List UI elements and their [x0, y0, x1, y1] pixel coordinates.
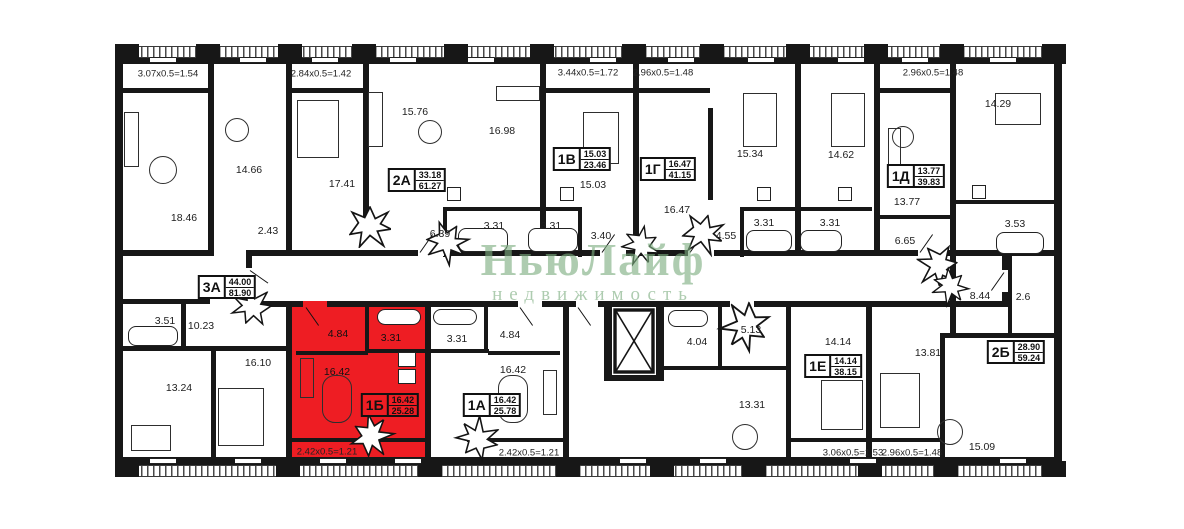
window-icon	[590, 57, 616, 63]
wall	[604, 375, 664, 381]
wall	[950, 200, 1062, 204]
bathtub-icon	[377, 309, 421, 325]
window-icon	[1000, 458, 1026, 464]
door-opening	[303, 301, 327, 307]
window-icon	[150, 57, 176, 63]
wall	[484, 307, 488, 353]
room-area-label: 16.42	[324, 366, 350, 378]
furniture-outline	[368, 92, 383, 147]
living-area-value: 33.18	[416, 170, 445, 181]
window-icon	[748, 57, 774, 63]
wall	[443, 207, 582, 211]
wall	[543, 88, 635, 93]
window-icon	[240, 57, 266, 63]
apartment-type-label: 1Е	[806, 356, 829, 376]
facade-pier	[786, 44, 810, 64]
balcony-railing	[123, 465, 1055, 477]
room-area-label: 3.40	[591, 230, 611, 242]
apartment-badge-2b[interactable]: 2Б28.9059.24	[987, 340, 1045, 364]
facade-pier	[622, 44, 646, 64]
apartment-badge-1d[interactable]: 1Д13.7739.83	[887, 164, 945, 188]
bathtub-icon	[128, 326, 178, 346]
furniture-outline	[543, 370, 557, 415]
room-area-label: 4.04	[687, 336, 707, 348]
facade-pier	[1042, 44, 1066, 64]
bed-icon	[322, 375, 352, 423]
apartment-type-label: 1В	[555, 149, 579, 169]
wall	[740, 207, 872, 211]
room-area-label: 6.65	[895, 235, 915, 247]
wall	[708, 108, 713, 200]
room-area-label: 13.81	[915, 347, 941, 359]
table-icon	[418, 120, 442, 144]
apartment-type-label: 1А	[465, 395, 489, 415]
facade-pier	[530, 44, 554, 64]
room-area-label: 5.13	[741, 324, 761, 336]
apartment-areas: 16.4225.28	[387, 395, 418, 415]
door-swing-icon	[520, 307, 533, 326]
wall	[878, 88, 952, 93]
living-area-value: 14.14	[831, 356, 860, 367]
table-icon	[149, 156, 177, 184]
apartment-badge-1b[interactable]: 1Б16.4225.28	[361, 393, 419, 417]
apartment-areas: 28.9059.24	[1013, 342, 1044, 362]
room-area-label: 15.03	[580, 179, 606, 191]
dimension-label: 2.84x0.5=1.42	[291, 69, 351, 80]
wall	[1054, 56, 1062, 465]
room-area-label: 3.51	[155, 315, 175, 327]
table-icon	[732, 424, 758, 450]
room-area-label: 15.09	[969, 441, 995, 453]
room-area-label: 10.23	[188, 320, 214, 332]
room-area-label: 3.31	[447, 333, 467, 345]
wall	[296, 351, 368, 355]
bathtub-icon	[668, 310, 708, 327]
bathtub-icon	[746, 230, 792, 252]
dimension-label: 2.96x0.5=1.48	[903, 68, 963, 79]
facade-pier	[278, 44, 302, 64]
apartment-areas: 16.4225.78	[489, 395, 520, 415]
bathtub-icon	[800, 230, 842, 252]
room-area-label: 13.77	[894, 196, 920, 208]
watermark: НьюЛайф недвижимость	[481, 238, 706, 306]
furniture-outline	[124, 112, 139, 167]
room-area-label: 4.55	[716, 230, 736, 242]
facade-pier	[418, 461, 442, 477]
furniture-outline	[821, 380, 863, 430]
window-icon	[150, 458, 176, 464]
window-icon	[700, 458, 726, 464]
window-icon	[668, 57, 694, 63]
room-area-label: 14.29	[985, 98, 1011, 110]
total-area-value: 81.90	[226, 288, 255, 298]
door-opening	[576, 301, 598, 307]
room-area-label: 15.34	[737, 148, 763, 160]
apartment-areas: 14.1438.15	[829, 356, 860, 376]
facade-pier	[940, 44, 964, 64]
furniture-outline	[300, 358, 314, 398]
living-area-value: 16.42	[491, 395, 520, 406]
room-area-label: 8.44	[970, 290, 990, 302]
wall	[122, 346, 290, 351]
total-area-value: 39.83	[915, 177, 944, 187]
room-area-label: 14.66	[236, 164, 262, 176]
table-icon	[225, 118, 249, 142]
living-area-value: 28.90	[1015, 342, 1044, 353]
apartment-badge-1e[interactable]: 1Е14.1438.15	[804, 354, 862, 378]
wall	[289, 88, 365, 93]
facade-pier	[444, 44, 468, 64]
facade-pier	[556, 461, 580, 477]
apartment-type-label: 2Б	[989, 342, 1013, 362]
room-area-label: 3.31	[754, 217, 774, 229]
dimension-label: 2.42x0.5=1.21	[499, 448, 559, 459]
entrance-door-burst-icon	[616, 221, 665, 270]
watermark-brand: НьюЛайф	[481, 238, 706, 282]
dimension-label: 2.96x0.5=1.48	[633, 68, 693, 79]
room-area-label: 16.42	[500, 364, 526, 376]
apartment-areas: 13.7739.83	[913, 166, 944, 186]
window-icon	[990, 57, 1016, 63]
window-icon	[390, 57, 416, 63]
total-area-value: 25.28	[389, 406, 418, 416]
dimension-label: 3.06x0.5=1.53	[823, 448, 883, 459]
total-area-value: 25.78	[491, 406, 520, 416]
facade-pier	[115, 44, 139, 64]
wall	[122, 88, 210, 93]
room-area-label: 16.47	[664, 204, 690, 216]
window-icon	[850, 458, 876, 464]
apartment-areas: 33.1861.27	[414, 170, 445, 190]
wall	[365, 307, 369, 353]
wall	[791, 438, 868, 442]
living-area-value: 16.47	[666, 159, 695, 170]
apartment-badge-2a[interactable]: 2А33.1861.27	[388, 168, 446, 192]
furniture-outline	[880, 373, 920, 428]
room-area-label: 17.41	[329, 178, 355, 190]
apartment-type-label: 2А	[390, 170, 414, 190]
furniture-outline	[496, 86, 540, 101]
room-area-label: 3.31	[541, 220, 561, 232]
facade-pier	[196, 44, 220, 64]
apartment-badge-1g[interactable]: 1Г16.4741.15	[640, 157, 696, 181]
wall	[940, 333, 1056, 338]
appliance-icon	[757, 187, 771, 201]
dimension-label: 2.96x0.5=1.48	[882, 448, 942, 459]
dimension-label: 3.44x0.5=1.72	[558, 68, 618, 79]
entrance-door-burst-icon	[420, 216, 475, 271]
apartment-type-label: 1Г	[642, 159, 664, 179]
door-swing-icon	[578, 307, 591, 326]
facade-pier	[650, 461, 674, 477]
total-area-value: 59.24	[1015, 353, 1044, 363]
wall	[431, 349, 489, 353]
facade-pier	[864, 44, 888, 64]
table-icon	[892, 126, 914, 148]
appliance-icon	[398, 352, 416, 367]
room-area-label: 14.62	[828, 149, 854, 161]
facade-pier	[352, 44, 376, 64]
furniture-outline	[131, 425, 171, 451]
room-area-label: 2.6	[1016, 291, 1031, 303]
wall	[656, 301, 664, 381]
window-icon	[395, 458, 421, 464]
living-area-value: 13.77	[915, 166, 944, 177]
furniture-outline	[743, 93, 777, 147]
room-area-label: 18.46	[171, 212, 197, 224]
window-icon	[838, 57, 864, 63]
wall	[604, 301, 612, 381]
dimension-label: 3.07x0.5=1.54	[138, 69, 198, 80]
room-area-label: 3.31	[381, 332, 401, 344]
total-area-value: 38.15	[831, 367, 860, 377]
furniture-outline	[297, 100, 339, 158]
room-area-label: 2.43	[258, 225, 278, 237]
wall	[870, 438, 942, 442]
living-area-value: 16.42	[389, 395, 418, 406]
facade-pier	[742, 461, 766, 477]
furniture-outline	[831, 93, 865, 147]
apartment-areas: 16.4741.15	[664, 159, 695, 179]
room-area-label: 3.53	[1005, 218, 1025, 230]
window-icon	[312, 57, 338, 63]
wall	[246, 301, 1006, 307]
wall	[874, 215, 952, 219]
appliance-icon	[560, 187, 574, 201]
wall	[115, 56, 123, 465]
room-area-label: 3.31	[820, 217, 840, 229]
wall	[795, 60, 801, 256]
total-area-value: 61.27	[416, 181, 445, 191]
apartment-type-label: 1Д	[889, 166, 913, 186]
living-area-value: 15.03	[581, 149, 610, 160]
total-area-value: 41.15	[666, 170, 695, 180]
appliance-icon	[398, 369, 416, 384]
living-area-value: 44.00	[226, 277, 255, 288]
window-icon	[620, 458, 646, 464]
room-area-label: 4.84	[328, 328, 348, 340]
elevator-icon	[613, 308, 655, 374]
facade-pier	[1042, 461, 1066, 477]
bathtub-icon	[996, 232, 1044, 254]
facade-pier	[700, 44, 724, 64]
wall	[664, 366, 788, 370]
room-area-label: 16.10	[245, 357, 271, 369]
apartment-areas: 44.0081.90	[224, 277, 255, 297]
furniture-outline	[218, 388, 264, 446]
wall	[122, 250, 210, 256]
room-area-label: 6.39	[430, 228, 450, 240]
room-area-label: 13.24	[166, 382, 192, 394]
room-area-label: 14.14	[825, 336, 851, 348]
room-area-label: 13.31	[739, 399, 765, 411]
apartment-badge-1a[interactable]: 1А16.4225.78	[463, 393, 521, 417]
facade-pier	[276, 461, 300, 477]
room-area-label: 4.84	[500, 329, 520, 341]
wall	[637, 88, 710, 93]
appliance-icon	[838, 187, 852, 201]
dimension-label: 2.42x0.5=1.21	[297, 447, 357, 458]
window-icon	[320, 458, 346, 464]
facade-pier	[115, 461, 139, 477]
appliance-icon	[972, 185, 986, 199]
apartment-badge-3a[interactable]: 3А44.0081.90	[198, 275, 256, 299]
wall	[211, 346, 216, 463]
wall	[488, 351, 560, 355]
room-area-label: 3.31	[484, 220, 504, 232]
facade-pier	[934, 461, 958, 477]
floor-plan: 18.4614.662.4317.4115.7616.986.393.313.3…	[0, 0, 1184, 529]
total-area-value: 23.46	[581, 160, 610, 170]
table-icon	[937, 419, 963, 445]
window-icon	[235, 458, 261, 464]
appliance-icon	[447, 187, 461, 201]
entrance-door-burst-icon	[349, 206, 391, 248]
apartment-areas: 15.0323.46	[579, 149, 610, 169]
window-icon	[902, 57, 928, 63]
room-area-label: 16.98	[489, 125, 515, 137]
window-icon	[468, 57, 494, 63]
room-area-label: 15.76	[402, 106, 428, 118]
apartment-type-label: 3А	[200, 277, 224, 297]
door-opening	[518, 301, 542, 307]
apartment-type-label: 1Б	[363, 395, 387, 415]
wall	[122, 299, 210, 304]
wall	[181, 299, 186, 351]
wall	[1008, 256, 1012, 336]
apartment-badge-1v[interactable]: 1В15.0323.46	[553, 147, 611, 171]
bathtub-icon	[433, 309, 477, 325]
